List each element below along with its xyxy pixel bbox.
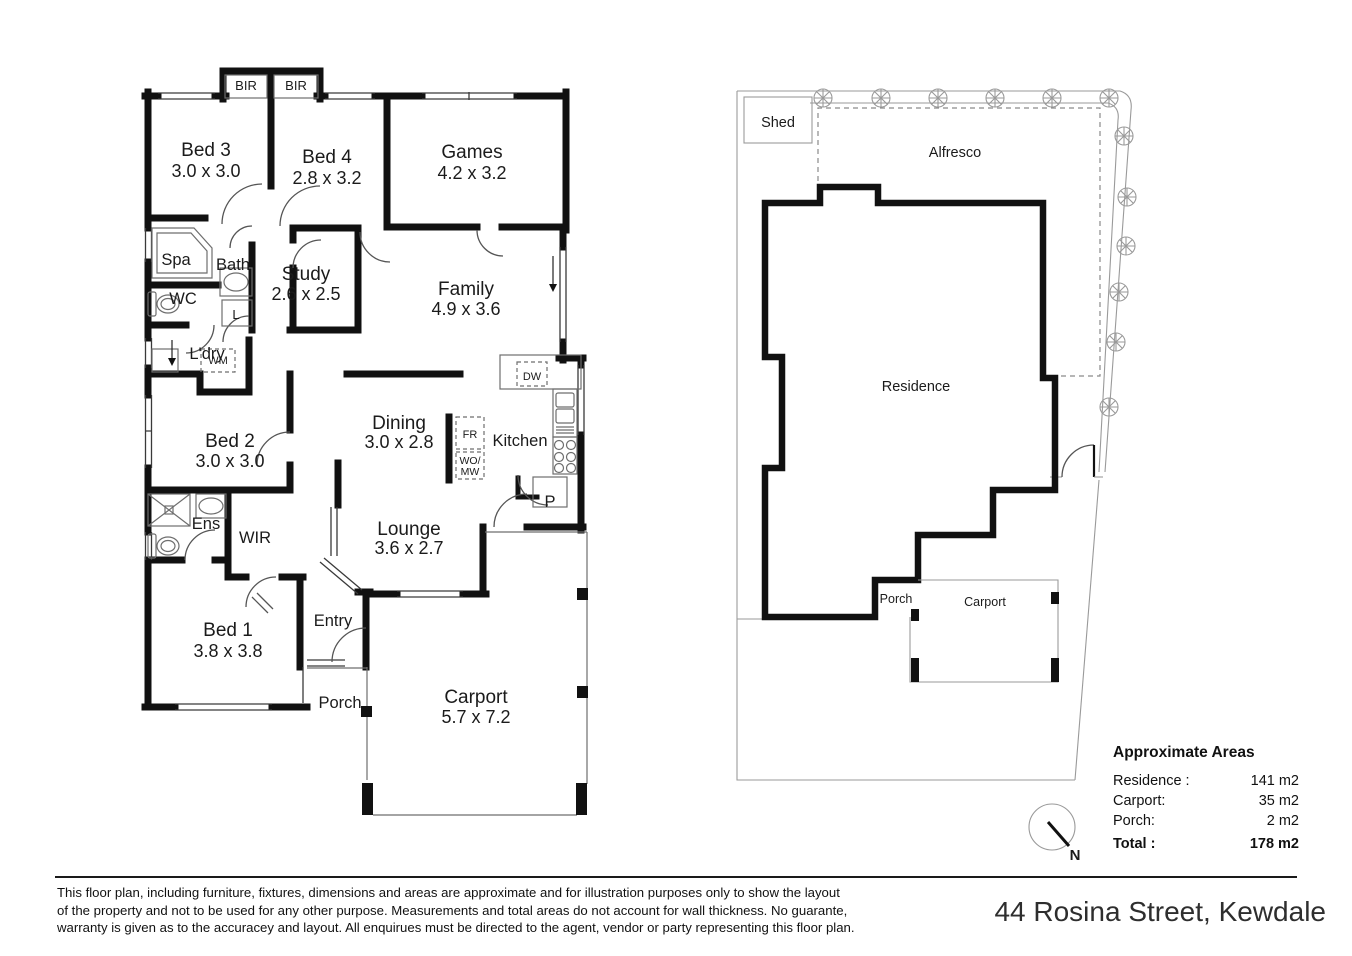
label-family: Family (438, 279, 494, 300)
area-total-label: Total : (1113, 834, 1155, 854)
floorplan-page: BIR BIR Bed 3 3.0 x 3.0 Bed 4 2.8 x 3.2 … (0, 0, 1352, 956)
label-entry: Entry (314, 612, 353, 630)
boundary-trees (814, 89, 1136, 416)
label-wm: WM (208, 355, 228, 367)
residence-outline (765, 187, 1055, 617)
label-residence: Residence (882, 379, 951, 395)
area-row-residence: Residence : 141 m2 (1113, 771, 1299, 791)
area-row-total: Total : 178 m2 (1113, 834, 1299, 854)
label-bed1: Bed 1 (203, 620, 253, 641)
compass-north-label: N (1070, 847, 1081, 864)
label-bed2-dim: 3.0 x 3.0 (195, 451, 264, 471)
label-bir-right: BIR (285, 78, 307, 93)
label-lounge-dim: 3.6 x 2.7 (374, 538, 443, 558)
label-dining-dim: 3.0 x 2.8 (364, 432, 433, 452)
label-pantry: P (544, 493, 555, 511)
disclaimer-line-1: This floor plan, including furniture, fi… (57, 884, 927, 902)
label-wir: WIR (239, 529, 271, 547)
area-label: Porch: (1113, 811, 1155, 831)
area-row-porch: Porch: 2 m2 (1113, 811, 1299, 831)
area-label: Residence : (1113, 771, 1190, 791)
label-carport: Carport (444, 687, 508, 708)
label-site-carport: Carport (964, 595, 1006, 609)
label-lounge: Lounge (377, 519, 440, 540)
label-bath: Bath (216, 256, 250, 274)
floorplan-labels: BIR BIR Bed 3 3.0 x 3.0 Bed 4 2.8 x 3.2 … (161, 78, 555, 727)
label-study-dim: 2.6 x 2.5 (271, 284, 340, 304)
disclaimer-line-3: warranty is given as to the accuracey an… (57, 919, 927, 937)
area-value: 35 m2 (1259, 791, 1299, 811)
disclaimer-text: This floor plan, including furniture, fi… (57, 884, 927, 937)
label-linen: L (232, 307, 239, 322)
label-bed4-dim: 2.8 x 3.2 (292, 168, 361, 188)
north-compass: N (1029, 804, 1080, 864)
floor-plan: BIR BIR Bed 3 3.0 x 3.0 Bed 4 2.8 x 3.2 … (145, 71, 588, 815)
label-wc: WC (169, 290, 197, 308)
label-dining: Dining (372, 413, 426, 434)
label-bed4: Bed 4 (302, 147, 352, 168)
site-plan: Shed Alfresco Residence Porch Carport (737, 89, 1136, 780)
label-dw: DW (523, 371, 542, 383)
label-games: Games (441, 142, 502, 163)
label-fridge: FR (463, 429, 478, 441)
site-boundary (737, 91, 1131, 780)
label-carport-dim: 5.7 x 7.2 (441, 707, 510, 727)
label-family-dim: 4.9 x 3.6 (431, 299, 500, 319)
label-kitchen: Kitchen (492, 432, 547, 450)
label-bed3: Bed 3 (181, 140, 231, 161)
disclaimer-line-2: of the property and not to be used for a… (57, 902, 927, 920)
compass-needle (1048, 822, 1069, 846)
label-ens: Ens (192, 515, 220, 533)
label-bir-left: BIR (235, 78, 257, 93)
area-value: 2 m2 (1267, 811, 1299, 831)
label-bed3-dim: 3.0 x 3.0 (171, 161, 240, 181)
area-total-value: 178 m2 (1250, 834, 1299, 854)
property-address: 44 Rosina Street, Kewdale (994, 896, 1326, 928)
label-site-porch: Porch (880, 592, 913, 606)
label-alfresco: Alfresco (929, 145, 981, 161)
footer-divider (55, 876, 1297, 878)
label-shed: Shed (761, 115, 795, 131)
label-study: Study (282, 264, 331, 285)
area-value: 141 m2 (1251, 771, 1299, 791)
label-bed1-dim: 3.8 x 3.8 (193, 641, 262, 661)
areas-title: Approximate Areas (1113, 744, 1299, 762)
gate (1062, 445, 1103, 477)
areas-panel: Approximate Areas Residence : 141 m2 Car… (1113, 744, 1299, 854)
label-games-dim: 4.2 x 3.2 (437, 163, 506, 183)
label-bed2: Bed 2 (205, 431, 255, 452)
label-mw: MW (461, 466, 480, 478)
label-porch: Porch (318, 694, 361, 712)
area-label: Carport: (1113, 791, 1165, 811)
area-row-carport: Carport: 35 m2 (1113, 791, 1299, 811)
label-spa: Spa (161, 251, 191, 269)
